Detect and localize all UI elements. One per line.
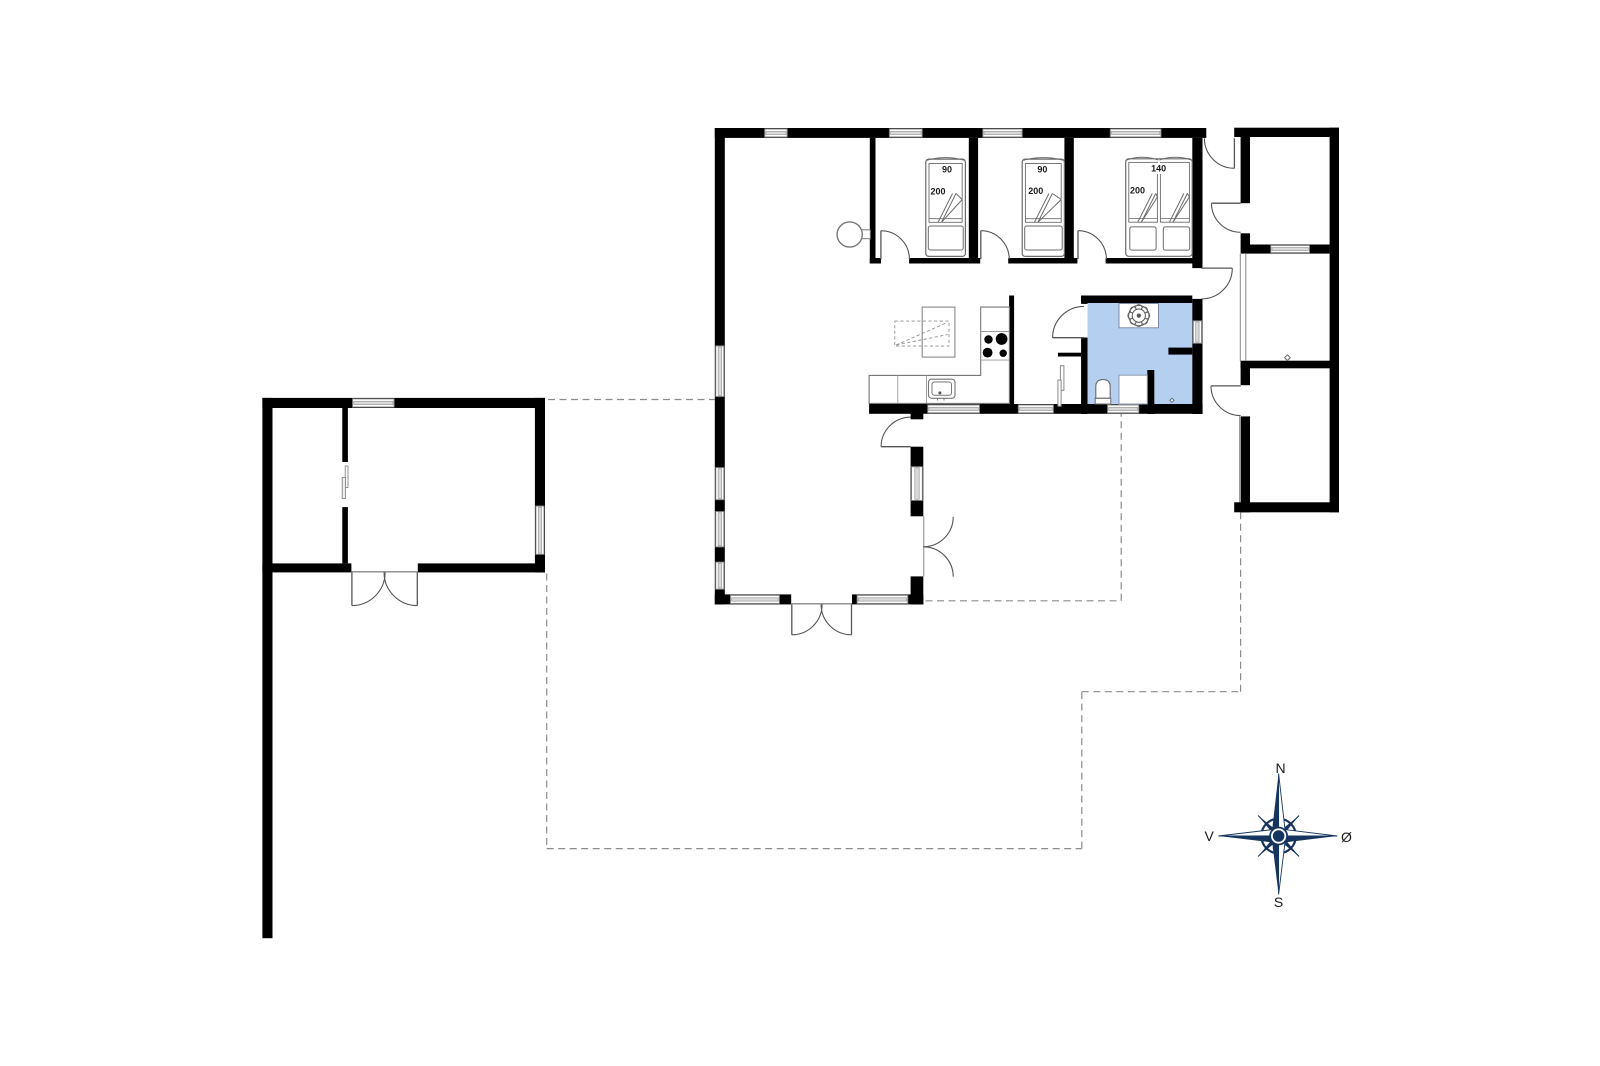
svg-text:Ø: Ø [1341, 829, 1352, 845]
svg-text:S: S [1274, 894, 1283, 910]
svg-text:200: 200 [930, 186, 945, 196]
svg-text:N: N [1275, 760, 1285, 776]
svg-text:V: V [1205, 828, 1215, 844]
svg-text:90: 90 [1037, 165, 1047, 175]
svg-text:140: 140 [1151, 164, 1166, 174]
svg-text:200: 200 [1028, 186, 1043, 196]
svg-text:200: 200 [1130, 186, 1145, 196]
svg-text:90: 90 [942, 164, 952, 174]
